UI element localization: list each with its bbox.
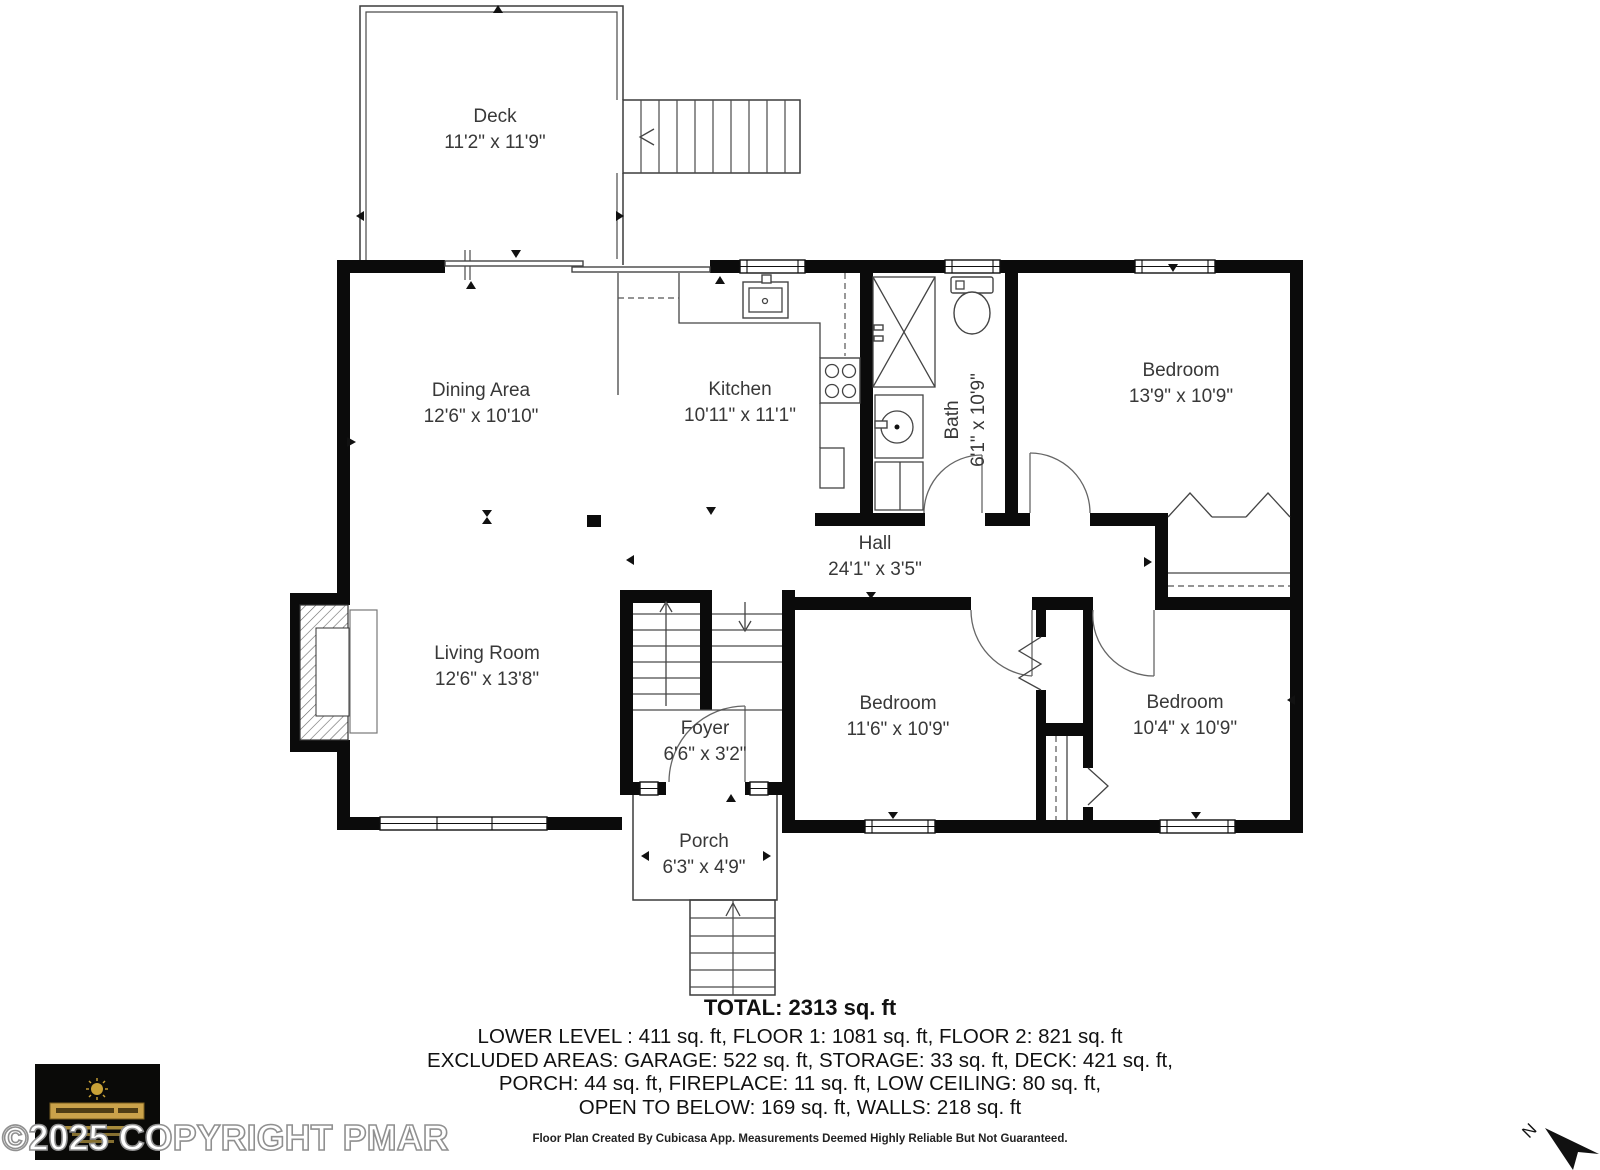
svg-text:6'3" x 4'9": 6'3" x 4'9" [662,857,745,878]
stairs-up-arrow [660,602,672,706]
room-label-porch: Porch6'3" x 4'9" [662,831,745,878]
summary-line-porch: PORCH: 44 sq. ft, FIREPLACE: 11 sq. ft, … [0,1072,1600,1096]
window [380,817,547,830]
deck-outline [360,6,800,280]
front-door-sidelight [750,782,768,795]
svg-text:Kitchen: Kitchen [708,379,771,400]
bath-cabinet [875,462,923,510]
svg-text:Bath: Bath [942,400,963,439]
svg-text:13'9" x 10'9": 13'9" x 10'9" [1129,386,1233,407]
room-label-bedroom-top-right: Bedroom13'9" x 10'9" [1129,360,1233,407]
svg-text:Bedroom: Bedroom [1146,692,1223,713]
kitchen-sink [743,275,788,318]
total-area: TOTAL: 2313 sq. ft [0,995,1600,1021]
bathroom-sink [875,395,923,458]
svg-text:10'4" x 10'9": 10'4" x 10'9" [1133,718,1237,739]
svg-text:Porch: Porch [679,831,729,852]
svg-text:Hall: Hall [859,533,892,554]
deck-stairs [623,100,800,173]
door-swing-bedroom-right [1093,610,1154,676]
front-door-sidelight [640,782,658,795]
bifold-closet-door-right-bedroom [1088,768,1108,805]
sliding-door [445,261,710,272]
windows [380,260,1235,833]
stove [820,358,860,403]
hearth [350,610,377,733]
svg-text:11'2" x 11'9": 11'2" x 11'9" [444,132,545,153]
room-label-bath: Bath6'1" x 10'9" [942,373,989,467]
structural-post [587,515,601,527]
window [945,260,1000,273]
summary-line-excluded: EXCLUDED AREAS: GARAGE: 522 sq. ft, STOR… [0,1049,1600,1073]
room-label-bedroom-right: Bedroom10'4" x 10'9" [1133,692,1237,739]
bifold-closet-door-mid-bedroom [1019,637,1041,690]
svg-text:11'6" x 10'9": 11'6" x 10'9" [847,719,950,740]
room-label-living-room: Living Room12'6" x 13'8" [434,643,540,690]
floor-plan-page: Deck11'2" x 11'9" Dining Area12'6" x 10'… [0,0,1600,1170]
svg-text:24'1" x 3'5": 24'1" x 3'5" [828,559,922,580]
doors [669,453,1290,805]
stairs-direction-arrow [640,129,654,145]
toilet [951,277,993,334]
svg-text:Bedroom: Bedroom [859,693,936,714]
kitchen-cabinet [820,448,844,488]
window [740,260,805,273]
shower [873,277,935,387]
room-label-hall: Hall24'1" x 3'5" [828,533,922,580]
svg-text:Dining Area: Dining Area [432,380,531,401]
summary-line-floors: LOWER LEVEL : 411 sq. ft, FLOOR 1: 1081 … [0,1025,1600,1049]
room-label-dining-area: Dining Area12'6" x 10'10" [424,380,539,427]
porch-outline [633,795,777,995]
svg-text:12'6" x 10'10": 12'6" x 10'10" [424,406,539,427]
svg-text:Deck: Deck [473,106,517,127]
svg-text:12'6" x 13'8": 12'6" x 13'8" [435,669,539,690]
room-label-bedroom-mid: Bedroom11'6" x 10'9" [847,693,950,740]
svg-text:Bedroom: Bedroom [1142,360,1219,381]
area-summary: TOTAL: 2313 sq. ft LOWER LEVEL : 411 sq.… [0,995,1600,1157]
window [865,820,935,833]
fireplace [290,593,377,752]
svg-text:Living Room: Living Room [434,643,540,664]
room-label-kitchen: Kitchen10'11" x 11'1" [684,379,796,426]
svg-text:6'1" x 10'9": 6'1" x 10'9" [968,373,989,467]
door-swing-bedroom-mid [971,610,1032,676]
room-label-deck: Deck11'2" x 11'9" [444,106,545,153]
summary-line-open: OPEN TO BELOW: 169 sq. ft, WALLS: 218 sq… [0,1096,1600,1120]
window [1160,820,1235,833]
bifold-closet-doors-top-bedroom [1168,493,1290,517]
room-label-foyer: Foyer6'6" x 3'2" [663,718,746,765]
svg-text:Foyer: Foyer [681,718,730,739]
svg-text:10'11" x 11'1": 10'11" x 11'1" [684,405,796,426]
svg-text:6'6" x 3'2": 6'6" x 3'2" [663,744,746,765]
door-swing-bedroom-top [1030,453,1090,513]
disclaimer: Floor Plan Created By Cubicasa App. Meas… [0,1133,1600,1145]
stairs-down-arrow [739,602,751,631]
porch-steps [690,900,775,995]
